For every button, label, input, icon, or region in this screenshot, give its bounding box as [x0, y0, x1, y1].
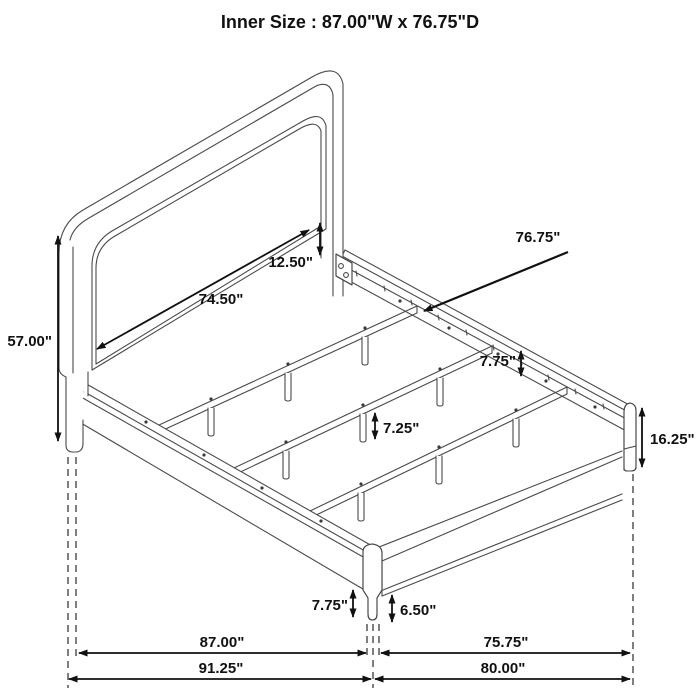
dim-rail-height: 7.75" — [480, 353, 516, 370]
diagram-canvas: 57.00" 74.50" 12.50" 76.75" 7.75" 7.25" … — [0, 0, 700, 700]
dim-footboard-height: 16.25" — [650, 431, 695, 448]
bed-dimension-diagram: 57.00" 74.50" 12.50" 76.75" 7.75" 7.25" … — [0, 0, 700, 700]
footboard-rail — [374, 451, 622, 596]
dim-center-leg: 7.25" — [383, 420, 419, 437]
support-beam — [159, 306, 417, 436]
page-title: Inner Size : 87.00"W x 76.75"D — [221, 12, 479, 32]
dim-front-leg: 7.75" — [312, 597, 348, 614]
dim-headboard-height: 57.00" — [7, 333, 52, 350]
support-beam — [234, 346, 492, 479]
bed-frame-drawing — [59, 71, 636, 620]
left-side-rail — [81, 382, 374, 592]
right-corner-leg — [624, 403, 636, 471]
dim-bottom-width-outer: 91.25" — [199, 660, 244, 677]
dim-inner-headboard-width: 74.50" — [199, 291, 244, 308]
front-corner-leg — [363, 544, 382, 620]
right-side-rail — [342, 250, 633, 433]
dim-bottom-width-inner: 87.00" — [200, 634, 245, 651]
dim-inner-depth: 76.75" — [516, 229, 561, 246]
dim-bottom-depth-outer: 80.00" — [481, 660, 526, 677]
dim-front-leg-lower: 6.50" — [400, 602, 436, 619]
dim-bottom-depth-inner: 75.75" — [484, 634, 529, 651]
dim-panel-gap: 12.50" — [268, 254, 313, 271]
